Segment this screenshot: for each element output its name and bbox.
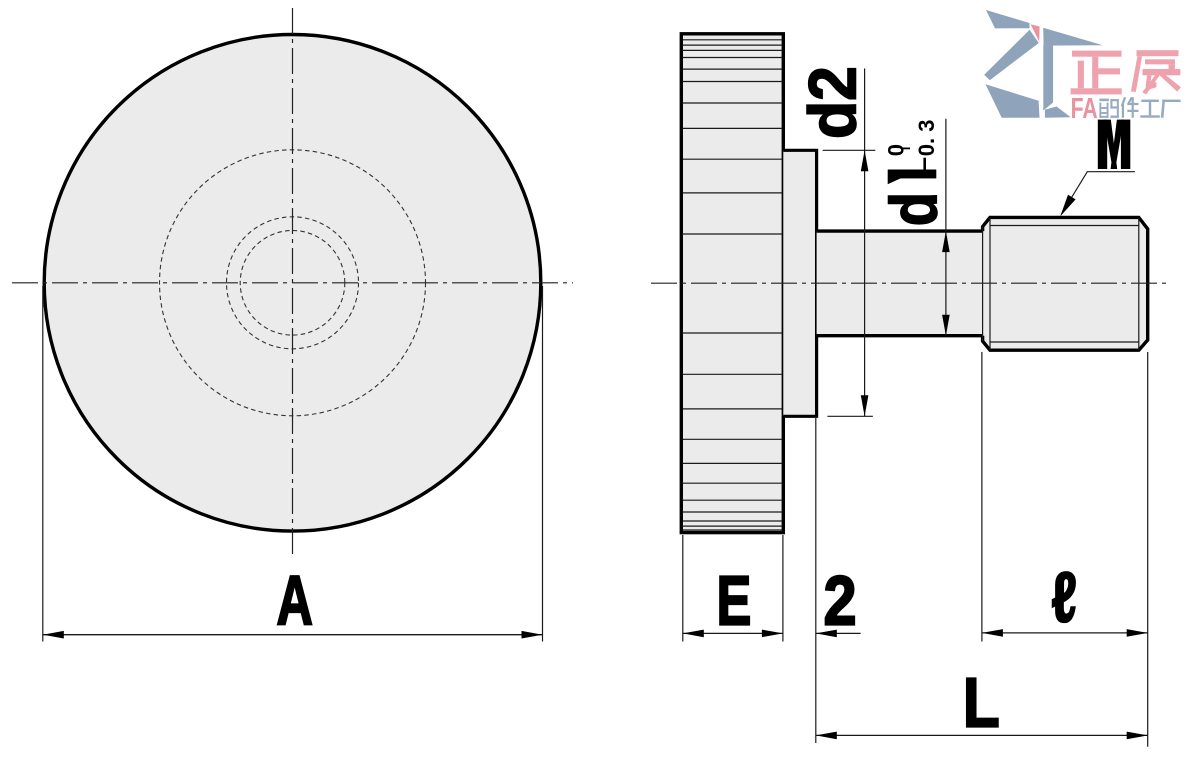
svg-text:FA: FA <box>1071 93 1098 125</box>
svg-text:E: E <box>716 562 751 640</box>
svg-text:A: A <box>277 561 313 639</box>
svg-text:d2: d2 <box>796 66 870 139</box>
svg-text:L: L <box>963 663 1000 741</box>
svg-text:0: 0 <box>883 144 908 156</box>
svg-text:ℓ: ℓ <box>1051 559 1077 637</box>
svg-text:d: d <box>877 192 950 226</box>
svg-text:2: 2 <box>824 561 857 640</box>
svg-text:0. 3: 0. 3 <box>914 119 939 156</box>
